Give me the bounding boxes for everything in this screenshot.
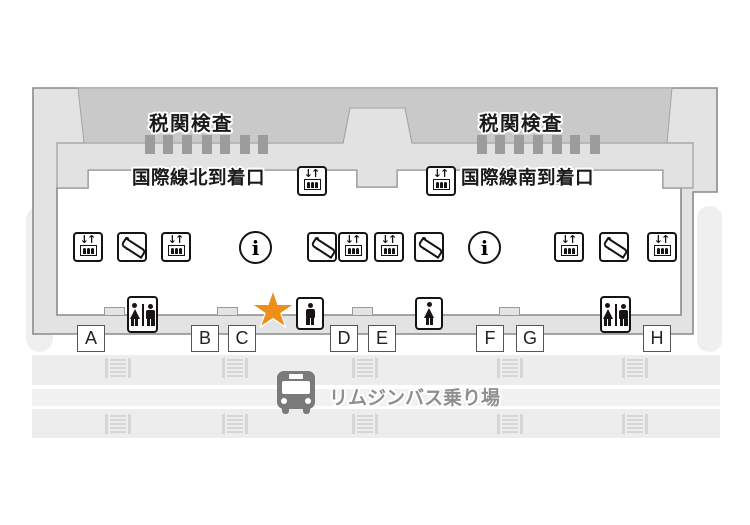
customs-label-south: 税関検査 <box>479 107 563 136</box>
toilet-male-female-icon <box>600 296 631 333</box>
divider <box>142 304 144 326</box>
terminal-building-outline <box>0 0 750 525</box>
elevator-icon: ↓↑ <box>161 232 191 262</box>
information-icon: i <box>468 231 501 264</box>
customs-label-north: 税関検査 <box>149 107 233 136</box>
toilet-male-icon <box>296 297 324 330</box>
bus-wheel <box>303 407 310 414</box>
bus-wheel <box>282 407 289 414</box>
toilet-female-icon <box>415 297 443 330</box>
wall-tab <box>217 307 238 316</box>
escalator-icon <box>117 232 147 262</box>
elevator-arrows: ↓↑ <box>299 169 325 179</box>
man-figure <box>146 304 155 326</box>
elevator-icon: ↓↑ <box>374 232 404 262</box>
elevator-icon: ↓↑ <box>73 232 103 262</box>
elevator-icon: ↓↑ <box>426 166 456 196</box>
north-arrival-gate-label: 国際線北到着口 <box>132 164 265 190</box>
information-icon: i <box>239 231 272 264</box>
elevator-arrows: ↓↑ <box>75 235 101 245</box>
bus-headlight <box>305 398 311 404</box>
exit-box-g: G <box>516 325 544 352</box>
man-figure <box>619 304 628 326</box>
bus-windshield <box>282 381 310 394</box>
woman-figure <box>130 303 140 326</box>
elevator-arrows: ↓↑ <box>649 235 675 245</box>
divider <box>615 304 617 326</box>
elevator-car <box>561 245 578 256</box>
elevator-icon: ↓↑ <box>338 232 368 262</box>
wall-tab <box>352 307 373 316</box>
south-arrival-gate-label: 国際線南到着口 <box>461 164 594 190</box>
elevator-car <box>345 245 362 256</box>
terminal-floor-map: 税関検査 税関検査 国際線北到着口 国際線南到着口 ↓↑ ↓↑ ↓↑ ↓↑ i … <box>0 0 750 525</box>
man-figure <box>306 303 315 325</box>
escalator-icon <box>414 232 444 262</box>
woman-figure <box>603 303 613 326</box>
exit-box-h: H <box>643 325 671 352</box>
info-symbol: i <box>481 238 489 258</box>
escalator-icon <box>307 232 337 262</box>
elevator-arrows: ↓↑ <box>163 235 189 245</box>
escalator-icon <box>599 232 629 262</box>
elevator-car <box>168 245 185 256</box>
elevator-arrows: ↓↑ <box>428 169 454 179</box>
toilet-male-female-icon <box>127 296 158 333</box>
exit-box-e: E <box>368 325 396 352</box>
exit-box-c: C <box>228 325 256 352</box>
elevator-car <box>304 179 321 190</box>
bus-headlight <box>281 398 287 404</box>
elevator-car <box>80 245 97 256</box>
info-symbol: i <box>252 238 260 258</box>
north-doors-hatching <box>145 135 268 154</box>
elevator-arrows: ↓↑ <box>556 235 582 245</box>
woman-figure <box>424 302 434 325</box>
bus-stop-label: リムジンバス乗り場 <box>329 383 500 410</box>
elevator-icon: ↓↑ <box>647 232 677 262</box>
elevator-car <box>433 179 450 190</box>
elevator-car <box>654 245 671 256</box>
exit-box-f: F <box>476 325 504 352</box>
bus-stop-icon <box>277 371 315 415</box>
elevator-car <box>381 245 398 256</box>
exit-box-b: B <box>191 325 219 352</box>
exit-box-d: D <box>330 325 358 352</box>
exit-box-a: A <box>77 325 105 352</box>
elevator-arrows: ↓↑ <box>340 235 366 245</box>
wall-tab <box>104 307 125 316</box>
elevator-icon: ↓↑ <box>297 166 327 196</box>
elevator-arrows: ↓↑ <box>376 235 402 245</box>
wall-tab <box>499 307 520 316</box>
bus-sign <box>289 374 303 379</box>
elevator-icon: ↓↑ <box>554 232 584 262</box>
